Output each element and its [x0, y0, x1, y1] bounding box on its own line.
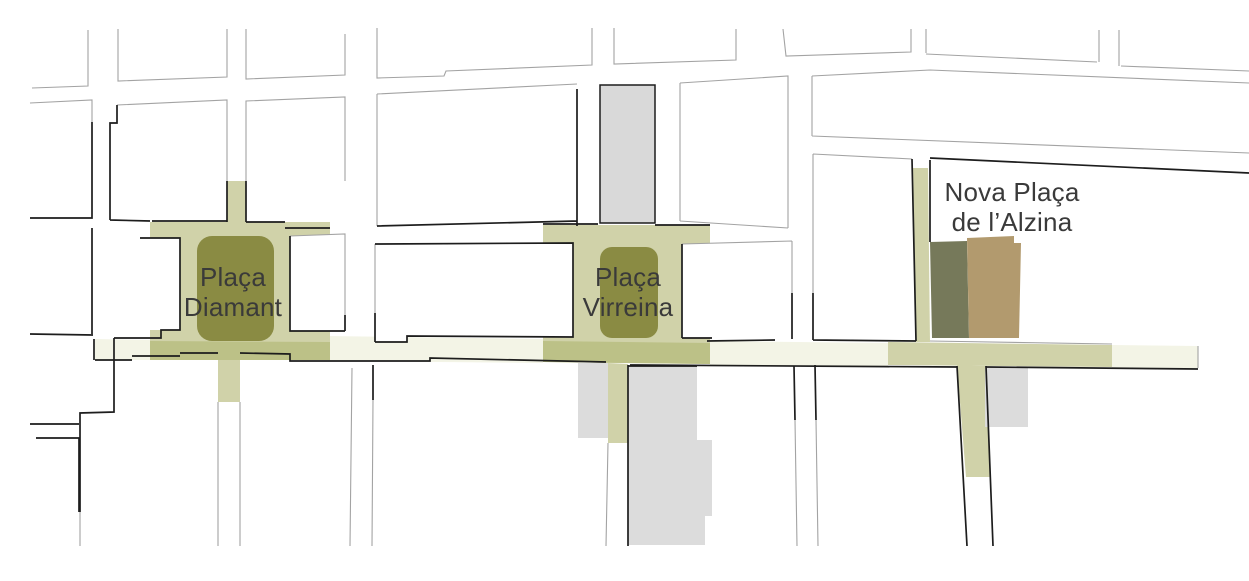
placa-diamant-square — [197, 236, 274, 341]
block-diamant-west — [140, 238, 180, 330]
alzina-dark-structure — [930, 241, 969, 338]
building-below-alzina — [985, 368, 1028, 427]
central-block-outline-dark — [377, 89, 577, 226]
main-street-segment-east — [710, 341, 888, 367]
alzina-tan-structure — [967, 236, 1021, 338]
block-virreina-east — [682, 241, 792, 338]
building-below-virreina-east — [628, 366, 712, 545]
placa-virreina-square — [600, 247, 658, 338]
block-between-plazas — [375, 243, 573, 342]
west-blocks-outline-dark — [30, 122, 94, 360]
diamant-side-street-north — [227, 181, 246, 222]
main-street-segment-far-east — [1112, 345, 1198, 368]
alzina-street-band — [888, 342, 1112, 367]
southwest-steps-outline — [30, 338, 114, 512]
building-below-virreina-west — [578, 363, 608, 438]
northeast-diagonal-streets-outline — [812, 30, 1249, 153]
alzina-structures — [930, 236, 1021, 338]
mid-blocks-outline — [30, 76, 788, 228]
diamant-street-overlap — [150, 341, 330, 360]
map-canvas: Plaça Diamant Plaça Virreina Nova Plaça … — [0, 0, 1249, 581]
diamant-side-street-south — [218, 360, 240, 402]
urban-plan-map — [0, 0, 1249, 581]
virreina-side-street-south — [608, 363, 628, 443]
north-blocks-outline — [32, 28, 926, 88]
block-west-of-alzina — [813, 154, 916, 341]
block-diamant-east — [290, 234, 345, 331]
building-above-virreina — [600, 85, 655, 223]
